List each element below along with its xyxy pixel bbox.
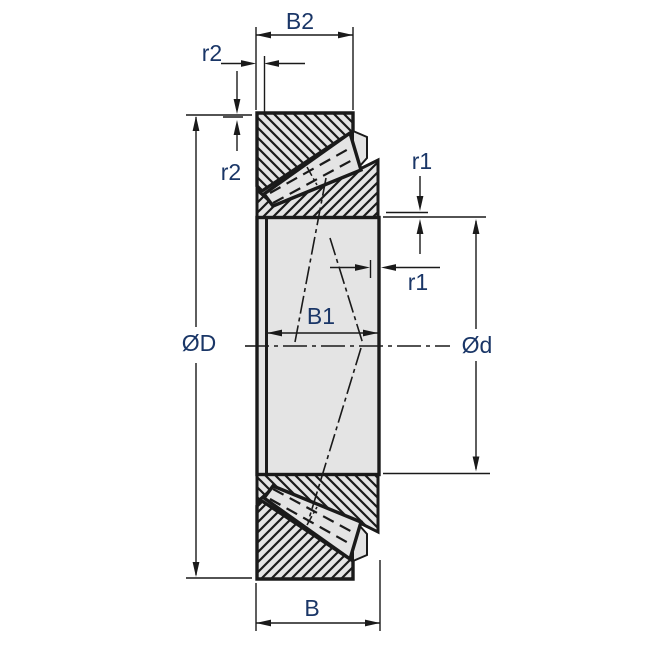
dim-label-b2: B2: [286, 8, 314, 34]
arrow-up-icon: [473, 219, 480, 234]
dim-label-r1-height: r1: [412, 148, 432, 174]
bearing-dimension-drawing: B2 r2 r2 ØD r1: [0, 0, 670, 670]
arrow-down-icon: [473, 457, 480, 472]
dim-label-b1: B1: [307, 303, 335, 329]
bearing-bottom-half: [257, 474, 378, 579]
arrow-left-icon: [264, 60, 279, 67]
dimension-r2-width: r2: [202, 40, 305, 112]
arrow-right-icon: [338, 32, 353, 39]
arrow-down-icon: [193, 562, 200, 577]
dim-label-bore-diameter: Ød: [462, 332, 493, 358]
dimension-b2: B2: [256, 8, 353, 110]
arrow-left-icon: [381, 264, 396, 271]
arrow-up-icon: [193, 116, 200, 131]
arrow-up-icon: [417, 219, 424, 234]
dimension-r1-height: r1: [386, 148, 432, 254]
arrow-down-icon: [417, 196, 424, 211]
arrow-down-icon: [234, 99, 241, 114]
arrow-left-icon: [256, 620, 271, 627]
dim-label-r2-height: r2: [221, 159, 241, 185]
dim-label-outer-diameter: ØD: [182, 330, 217, 356]
dim-label-r2-width: r2: [202, 40, 222, 66]
bearing-drawing-canvas: B2 r2 r2 ØD r1: [0, 0, 670, 670]
dimension-r2-height: r2: [221, 71, 243, 185]
dimension-outer-diameter: ØD: [182, 115, 252, 578]
dim-label-r1-width: r1: [408, 269, 428, 295]
arrow-up-icon: [234, 120, 241, 135]
arrow-right-icon: [365, 620, 380, 627]
arrow-left-icon: [256, 32, 271, 39]
arrow-right-icon: [241, 60, 256, 67]
bearing-top-half: [257, 113, 378, 218]
dim-label-b: B: [304, 595, 319, 621]
